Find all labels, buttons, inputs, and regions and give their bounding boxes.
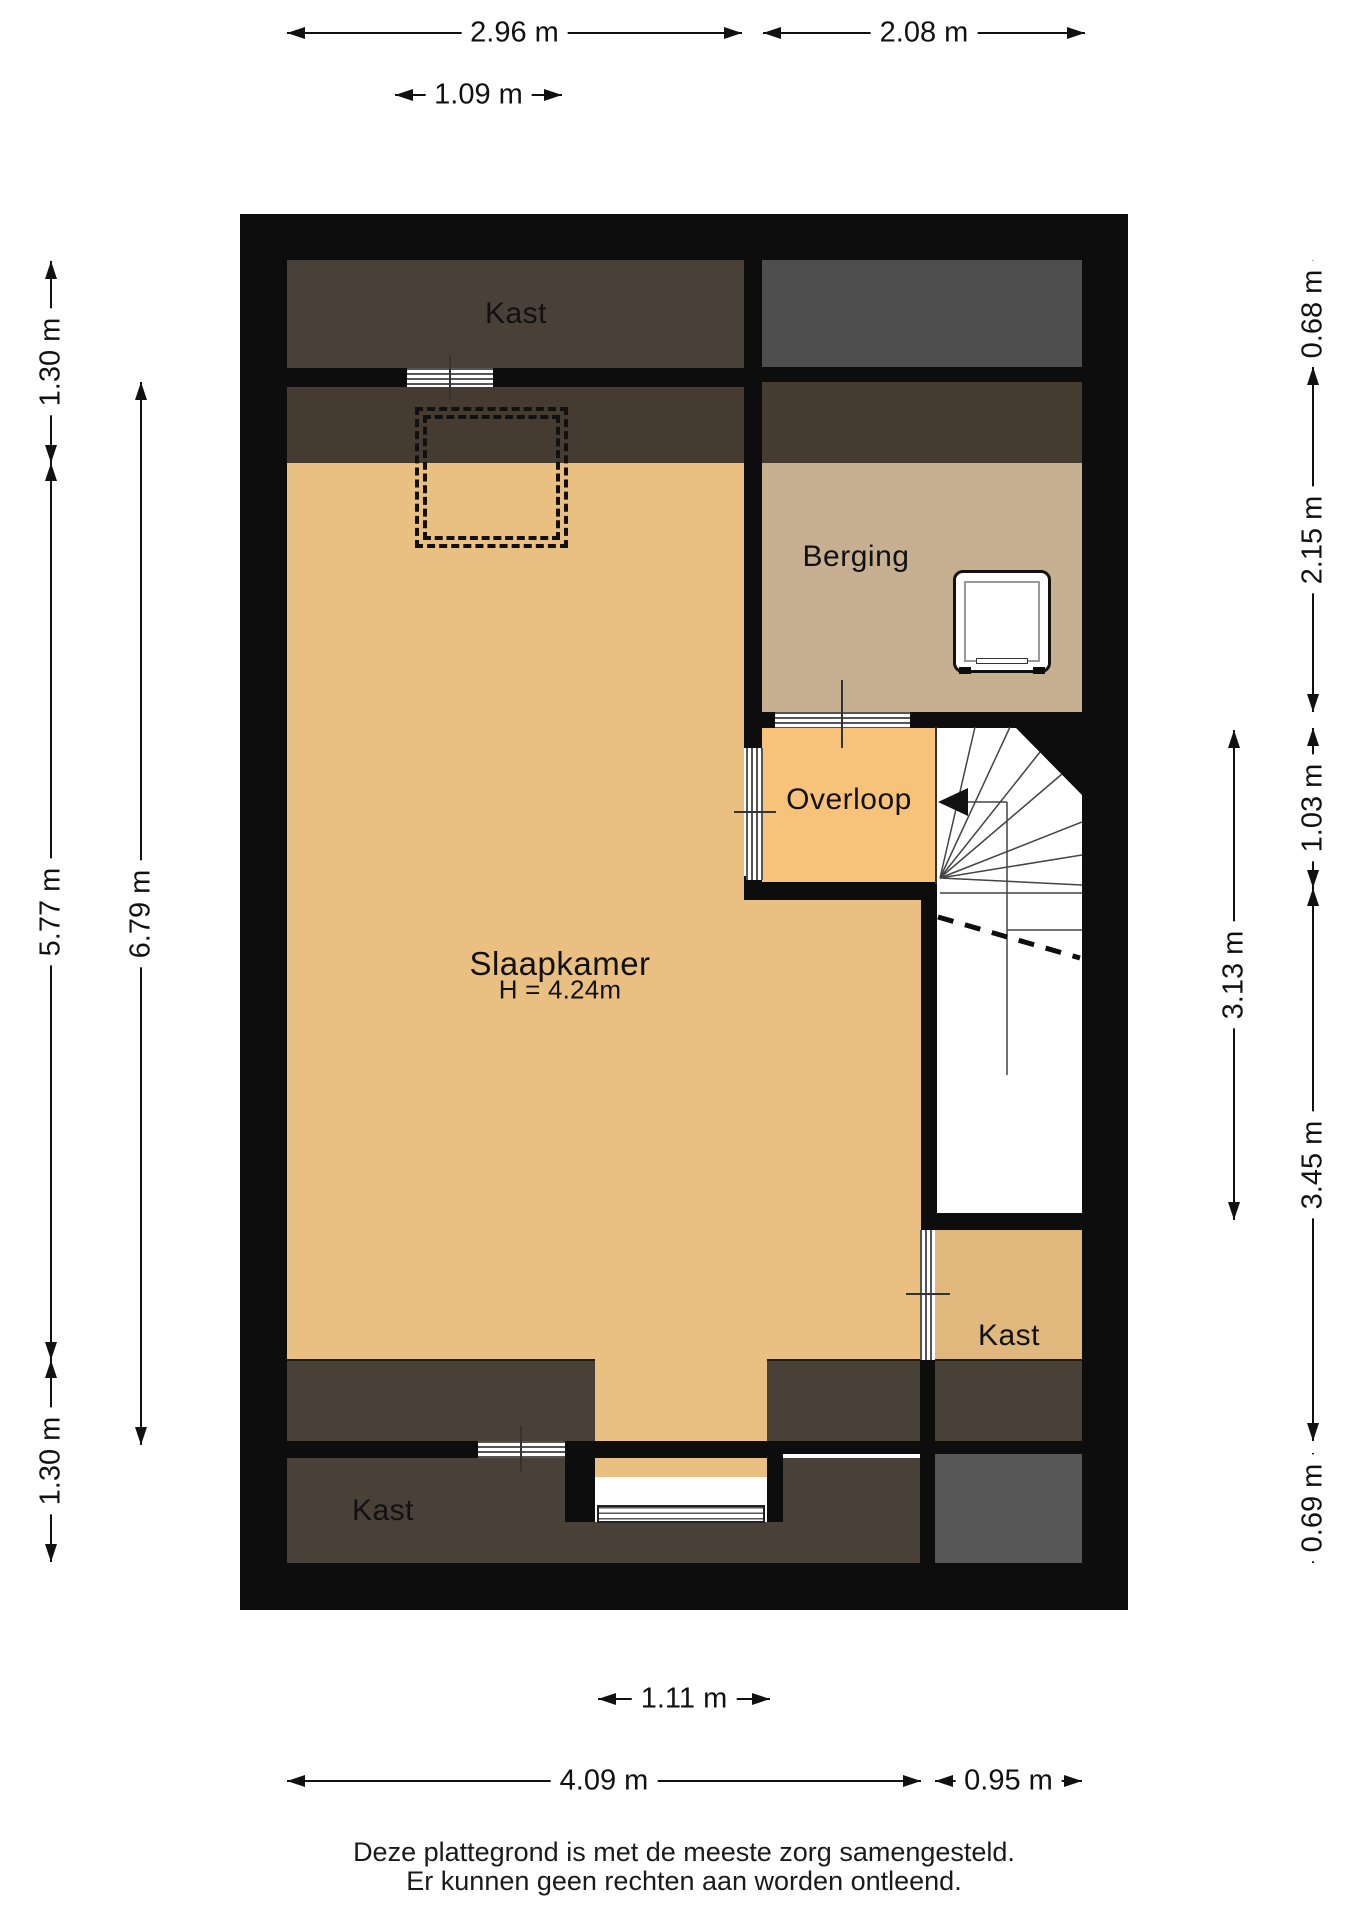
dormer-outline-inner [423, 415, 560, 540]
wall-bay-stub-right [767, 1458, 783, 1522]
tv-foot-left-icon [959, 667, 971, 674]
door-slaapkamer-kast-right [920, 1230, 935, 1360]
room-slaapkamer [287, 463, 744, 1360]
dim-top-dormer-width: 1.09 m [395, 87, 562, 103]
attic-space-bottom-right [935, 1453, 1082, 1563]
wall-stairwell-west [921, 900, 937, 1230]
label-kast-right: Kast [978, 1319, 1040, 1353]
dim-left-slaapkamer: 5.77 m [43, 463, 59, 1360]
window-bay-floor [595, 1360, 767, 1477]
label-overloop: Overloop [786, 783, 912, 817]
wall-outer-bottom [240, 1563, 1128, 1610]
stairs-treads [940, 727, 1082, 1075]
dim-right-stairwell: 3.13 m [1226, 730, 1242, 1220]
wall-bay-stub-left [565, 1458, 595, 1522]
tv-stand-icon [976, 658, 1028, 664]
stairs-icon [937, 727, 1082, 1213]
tick-door-kast-bottom [520, 1426, 522, 1472]
wall-attic-top-south [762, 367, 1082, 382]
wall-kast-bottom-north-b [565, 1441, 783, 1458]
tv-foot-right-icon [1033, 667, 1045, 674]
wall-overloop-south [744, 882, 937, 900]
dim-left-inner-height: 6.79 m [133, 382, 149, 1445]
label-kast-bottom: Kast [352, 1494, 414, 1528]
wall-outer-right [1082, 214, 1128, 1610]
stairs-direction-arrow [938, 788, 968, 816]
attic-space-top-right [762, 260, 1082, 367]
sloped-strip-bottom-right [935, 1359, 1082, 1441]
dim-bottom-window-width: 1.11 m [598, 1691, 770, 1707]
dim-top-width-right: 2.08 m [763, 25, 1085, 41]
wall-kast-bottom-north-c [783, 1441, 1082, 1454]
room-slaapkamer-extension [744, 900, 921, 1360]
dim-top-width-left: 2.96 m [287, 25, 742, 41]
tick-door-kast-top [449, 355, 451, 400]
wall-stairwell-south [921, 1213, 1082, 1230]
label-berging: Berging [803, 540, 910, 574]
window-overloop-slaapkamer [746, 748, 763, 880]
dim-left-kast-bottom: 1.30 m [43, 1360, 59, 1562]
disclaimer-line-2: Er kunnen geen rechten aan worden ontlee… [240, 1867, 1128, 1896]
wall-bottom-vertical [920, 1360, 935, 1563]
tick-door-kast-right [906, 1293, 950, 1295]
wall-outer-top [240, 214, 1128, 260]
sloped-strip-bottom-left [287, 1359, 595, 1441]
tv-screen-icon [964, 581, 1040, 662]
dim-right-attic-bottom: 0.69 m [1305, 1453, 1321, 1563]
dim-right-attic-top: 0.68 m [1305, 260, 1321, 367]
dim-right-berging: 2.15 m [1305, 367, 1321, 712]
sloped-strip-right [762, 382, 1082, 463]
disclaimer-line-1: Deze plattegrond is met de meeste zorg s… [240, 1838, 1128, 1867]
dim-right-lower: 3.45 m [1305, 888, 1321, 1441]
floorplan-canvas: Kast Berging Overloop Slaapkamer H = 4.2… [0, 0, 1358, 1920]
dim-left-kast-top: 1.30 m [43, 261, 59, 463]
sloped-strip-bottom-mid [767, 1359, 920, 1441]
disclaimer: Deze plattegrond is met de meeste zorg s… [240, 1838, 1128, 1896]
dormer-outline [415, 407, 568, 548]
label-slaapkamer-height: H = 4.24m [499, 975, 621, 1006]
wall-kast-top-south [287, 368, 744, 387]
label-kast-top: Kast [485, 297, 547, 331]
wall-kast-bottom-north-a [287, 1441, 478, 1458]
tv-icon [953, 570, 1051, 673]
dim-bottom-width-main: 4.09 m [287, 1773, 921, 1789]
dim-right-overloop: 1.03 m [1305, 728, 1321, 888]
wall-mid-vertical [744, 260, 762, 748]
wall-outer-left [240, 214, 287, 1610]
stairs-cut-line [938, 917, 1080, 958]
tick-door-berging [841, 680, 843, 748]
tick-window-overloop [734, 811, 776, 813]
window-bay-glazing [597, 1505, 765, 1523]
dim-bottom-width-stairs: 0.95 m [935, 1773, 1082, 1789]
